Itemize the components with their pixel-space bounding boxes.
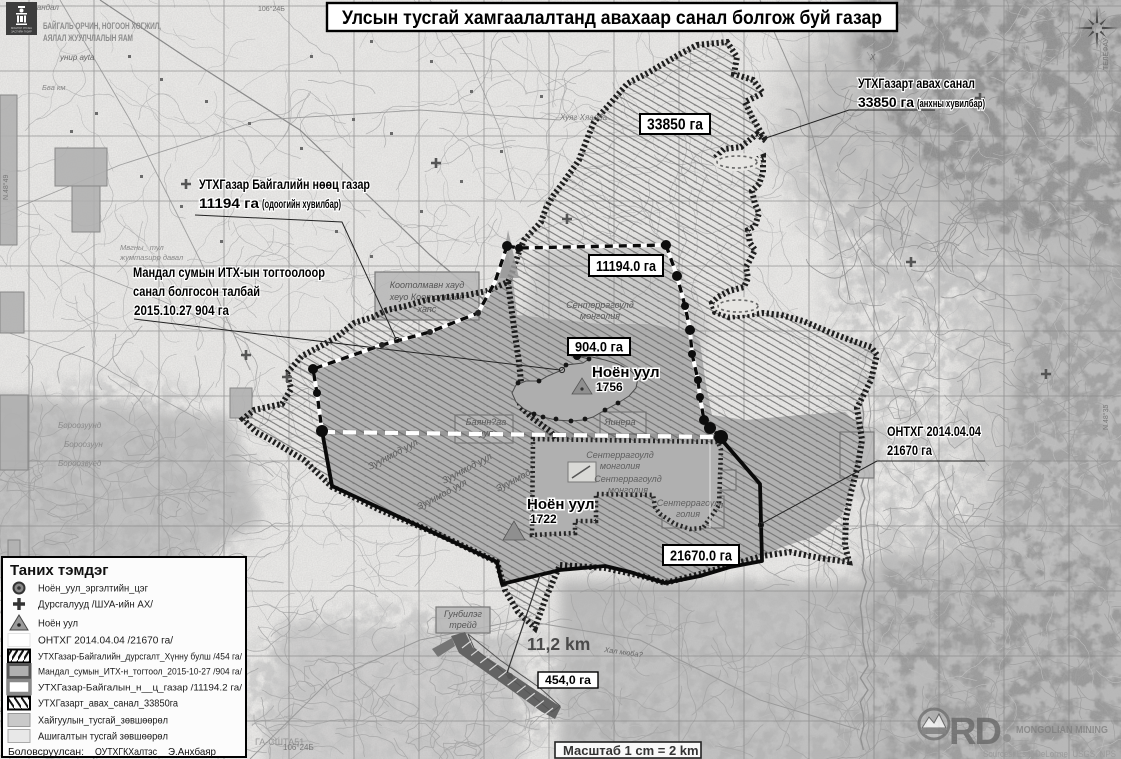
svg-text:ГА-СШТА51: ГА-СШТА51 <box>255 737 304 747</box>
svg-text:жумтаsupp давал: жумтаsupp давал <box>119 253 184 262</box>
svg-text:2015.10.27 904 га: 2015.10.27 904 га <box>134 303 229 318</box>
svg-text:21670.0 га: 21670.0 га <box>670 547 733 564</box>
svg-text:1722: 1722 <box>530 512 557 526</box>
svg-text:11,2 km: 11,2 km <box>527 634 590 654</box>
svg-text:11194 га: 11194 га <box>199 195 259 211</box>
svg-text:ЗАСГИЙН ГАЗАР: ЗАСГИЙН ГАЗАР <box>11 30 32 34</box>
svg-text:Улсын тусгай хамгаалалтанд ава: Улсын тусгай хамгаалалтанд авахаар санал… <box>342 7 882 29</box>
svg-text:Бороозуунд: Бороозуунд <box>58 421 102 430</box>
svg-text:Хайгуулын_тусгай_зөвшөөрөл: Хайгуулын_тусгай_зөвшөөрөл <box>38 716 168 727</box>
svg-text:Ноён уул: Ноён уул <box>527 496 595 513</box>
svg-text:454,0 га: 454,0 га <box>545 675 592 687</box>
svg-text:Дурсгалууд /ШУА-ийн АХ/: Дурсгалууд /ШУА-ийн АХ/ <box>38 600 153 611</box>
svg-text:Ноён уул: Ноён уул <box>38 619 78 630</box>
svg-text:Бороозуун: Бороозуун <box>64 440 103 449</box>
svg-text:11194.0 га: 11194.0 га <box>596 258 657 275</box>
svg-text:Боловсруулсан:: Боловсруулсан: <box>8 746 84 758</box>
svg-text:УТХГазар-Байгалийн_дурсгалт_Хү: УТХГазар-Байгалийн_дурсгалт_Хүнну булш /… <box>38 652 242 662</box>
svg-text:Сентеррагоулд: Сентеррагоулд <box>594 474 661 484</box>
svg-text:Масштаб 1 cm = 2 km: Масштаб 1 cm = 2 km <box>563 743 699 758</box>
svg-text:(одоогийн хувилбар): (одоогийн хувилбар) <box>262 199 341 211</box>
svg-text:33850 га: 33850 га <box>647 117 703 134</box>
svg-text:ОУТХГКХалтэс: ОУТХГКХалтэс <box>95 746 157 758</box>
svg-text:Хуяг Хяалба: Хуяг Хяалба <box>559 113 608 122</box>
svg-text:1756: 1756 <box>596 380 623 394</box>
svg-text:Ноён_уул_эргэлтийн_цэг: Ноён_уул_эргэлтийн_цэг <box>38 584 148 595</box>
svg-text:УТХГазар-Байгалын_н__ц_газар /: УТХГазар-Байгалын_н__ц_газар /11194.2 га… <box>38 683 242 693</box>
svg-text:RD: RD <box>949 711 1000 753</box>
svg-text:Бороозвуед: Бороозвуед <box>58 459 102 468</box>
svg-text:Таних тэмдэг: Таних тэмдэг <box>10 562 109 579</box>
svg-text:УТХГазарт авах санал: УТХГазарт авах санал <box>858 76 975 91</box>
svg-text:монголия: монголия <box>600 461 640 471</box>
svg-text:33850 га: 33850 га <box>858 95 915 110</box>
svg-text:Мвгны_ тул: Мвгны_ тул <box>120 243 165 252</box>
svg-text:голия: голия <box>676 509 700 519</box>
svg-text:АЯЛАЛ ЖУУЛЧЛАЛЫН ЯАМ: АЯЛАЛ ЖУУЛЧЛАЛЫН ЯАМ <box>43 33 133 44</box>
svg-text:Sources: Esri, DeLorme, USGS,: Sources: Esri, DeLorme, USGS, NPS <box>983 749 1116 759</box>
svg-text:Ноён уул: Ноён уул <box>592 364 660 381</box>
svg-text:ОНТХГ 2014.04.04: ОНТХГ 2014.04.04 <box>887 423 981 439</box>
svg-text:ТЕЛЕФАУ: ТЕЛЕФАУ <box>1103 37 1110 70</box>
svg-text:Мандал сумын ИТХ-ын тогтоолоор: Мандал сумын ИТХ-ын тогтоолоор <box>133 265 325 280</box>
svg-text:Мандал_сумын_ИТХ-н_тогтоол_201: Мандал_сумын_ИТХ-н_тогтоол_2015-10-27 /9… <box>38 667 242 677</box>
svg-text:MONGOLIAN MINING: MONGOLIAN MINING <box>1016 725 1108 736</box>
svg-text:Сентеррагоулд: Сентеррагоулд <box>586 450 653 460</box>
svg-text:Бва км: Бва км <box>42 83 66 92</box>
svg-text:МОНГОЛ УЛСЫН: МОНГОЛ УЛСЫН <box>11 26 32 30</box>
svg-text:Ашигалтын тусгай зөвшөөрөл: Ашигалтын тусгай зөвшөөрөл <box>38 732 168 743</box>
svg-text:904.0 га: 904.0 га <box>575 339 623 354</box>
svg-text:N.48°35: N.48°35 <box>1102 405 1110 430</box>
svg-text:ОНТХГ 2014.04.04 /21670 га/: ОНТХГ 2014.04.04 /21670 га/ <box>38 636 173 647</box>
svg-text:УТХГазар Байгалийн нөөц газар: УТХГазар Байгалийн нөөц газар <box>199 176 370 192</box>
svg-text:Коотолмавн хауд: Коотолмавн хауд <box>390 280 465 290</box>
svg-text:Э.Анхбаяр: Э.Анхбаяр <box>168 746 216 758</box>
svg-text:санал болгосон талбай: санал болгосон талбай <box>133 284 260 299</box>
svg-text:Гунбилэг: Гунбилэг <box>444 609 483 619</box>
svg-text:106°24Б: 106°24Б <box>258 5 285 13</box>
svg-text:21670 га: 21670 га <box>887 442 932 458</box>
svg-text:УТХГазарт_авах_санал_33850га: УТХГазарт_авах_санал_33850га <box>38 699 178 710</box>
svg-text:БАЙГАЛЬ ОРЧИН, НОГООН ХӨГЖИЛ,: БАЙГАЛЬ ОРЧИН, НОГООН ХӨГЖИЛ, <box>43 20 161 32</box>
svg-text:монголия: монголия <box>608 485 648 495</box>
svg-text:трейд: трейд <box>449 620 476 630</box>
svg-text:(анхны хувилбар): (анхны хувилбар) <box>917 98 985 110</box>
svg-text:N.48°49: N.48°49 <box>2 175 10 200</box>
